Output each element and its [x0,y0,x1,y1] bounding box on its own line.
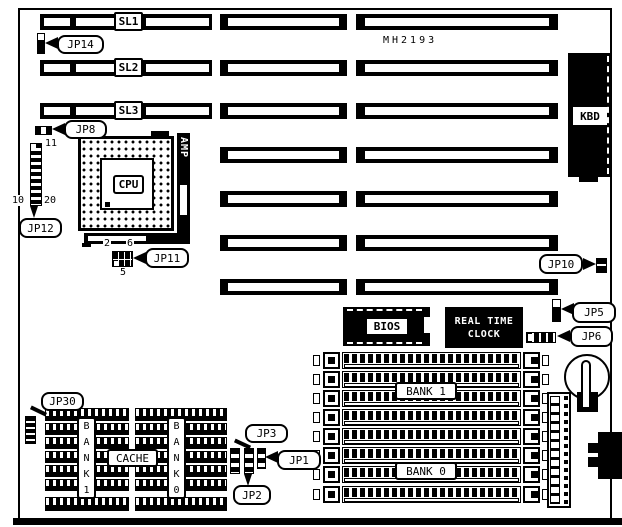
jp2-connector [244,448,254,474]
motherboard-diagram: SL1 SL2 SL3 MH2193 KBD JP14 JP8 [0,0,622,527]
cache-chip [182,423,227,435]
simm-bracket [523,428,540,445]
jp11-pin6-number: 6 [126,238,134,249]
simm-mount-hole [313,469,320,480]
jp1-callout: JP1 [277,450,321,470]
jp11-pin2-number: 2 [103,238,111,249]
jp12-pin20-number: 20 [43,195,57,206]
jp3-callout: JP3 [245,424,288,443]
isa-slot-mid [220,103,347,119]
cache-chip [182,451,227,463]
bios-chip: BIOS [343,307,430,346]
jp6-connector [526,332,556,343]
simm-latch [328,433,335,440]
simm-mount-hole [313,489,320,500]
cpu-pin1-dot [105,202,110,207]
rtc-label-line1: REAL TIME [455,315,514,328]
simm-latch [531,452,538,459]
simm-latch [531,433,538,440]
cache-bank0-label: B A N K 0 [167,417,186,499]
simm-body [344,421,519,425]
simm-mount-hole [313,374,320,385]
jp10-connector [596,258,607,273]
kbd-label: KBD [573,107,607,125]
slot-contact [44,18,70,26]
slot-label-sl2: SL2 [114,58,143,77]
jp2-callout: JP2 [233,485,271,505]
simm-body [344,364,519,368]
cache-chip [182,465,227,477]
simm-latch [531,471,538,478]
slot-contact [365,283,549,291]
simm-latch [328,376,335,383]
slot-label-sl1: SL1 [114,12,143,31]
simm-latch [328,452,335,459]
slot-contact [228,195,339,203]
isa-slot-right [356,14,558,30]
jp8-connector [35,126,52,135]
cache-chip [182,437,227,449]
jp10-arrow [583,258,596,270]
slot-contact [76,18,114,26]
isa-slot-right [356,191,558,207]
simm-bracket [323,371,340,388]
slot-contact [146,64,209,72]
isa-slot-sl2: SL2 [40,60,212,76]
simm-latch [328,491,335,498]
simm-bracket [523,486,540,503]
jp12-callout: JP12 [19,218,62,238]
din-connector [598,432,622,479]
simm-mount-hole [313,393,320,404]
simm-latch [531,414,538,421]
simm-bracket [323,428,340,445]
amp-regulator: AMP [177,133,190,233]
jp12-pin11-number: 11 [44,138,58,149]
simm-socket-row [342,352,521,369]
jp14-callout: JP14 [57,35,104,54]
jp30-callout: JP30 [41,392,84,411]
isa-slot-sl3: SL3 [40,103,212,119]
bios-notch [424,317,430,333]
jp12-connector [30,143,42,206]
simm-latch [328,395,335,402]
kbd-tab [579,177,598,182]
amp-label: AMP [178,137,189,158]
simm-bracket [523,390,540,407]
amp-slot [180,185,187,215]
simm-body [344,498,519,502]
slot-contact [44,107,70,115]
simm-latch [531,376,538,383]
bank0-label: BANK 0 [395,462,457,480]
cache-bank1-label: B A N K 1 [77,417,96,499]
bank1-label: BANK 1 [395,382,457,400]
isa-slot-right [356,103,558,119]
simm-bracket [523,447,540,464]
cache-chip [45,497,129,511]
simm-bracket [323,447,340,464]
simm-socket-row [342,486,521,503]
cpu-socket-arena: CPU [100,158,154,210]
simm-bracket [323,390,340,407]
simm-latch [328,357,335,364]
real-time-clock-chip: REAL TIME CLOCK [445,307,523,348]
simm-bracket [323,486,340,503]
jp11-connector [112,251,133,267]
jp5-connector [552,299,561,322]
cache-label: CACHE [107,449,158,467]
jp11-open-pin [114,261,118,266]
simm-socket-row [342,428,521,445]
jp10-callout: JP10 [539,254,583,274]
isa-slot-right [356,60,558,76]
slot-contact [146,107,209,115]
jp11-callout: JP11 [145,248,189,268]
isa-slot-mid [220,191,347,207]
jp12-pin10-number: 10 [11,195,25,206]
cpu-lower-connector-nub [82,243,91,247]
simm-contacts [344,449,519,458]
slot-contact [228,107,339,115]
simm-mount-hole [313,355,320,366]
isa-slot-right [356,279,558,295]
simm-body [344,440,519,444]
slot-contact [228,18,339,26]
slot-contact [365,107,549,115]
simm-latch [531,491,538,498]
jp8-callout: JP8 [64,120,107,139]
isa-slot-right [356,235,558,251]
isa-slot-mid [220,14,347,30]
isa-slot-mid [220,235,347,251]
simm-contacts [344,488,519,497]
simm-mount-hole [542,374,549,385]
isa-slot-mid [220,147,347,163]
slot-contact [228,283,339,291]
slot-contact [365,64,549,72]
slot-contact [365,239,549,247]
simm-bracket [523,371,540,388]
jp12-pointer [30,206,38,218]
din-connector-tab [588,457,598,467]
slot-contact [365,18,549,26]
simm-latch [531,395,538,402]
simm-bracket [323,352,340,369]
slot-contact [228,151,339,159]
cpu-socket: CPU [78,136,174,231]
jp30-connector [25,416,36,444]
isa-slot-right [356,147,558,163]
simm-mount-hole [313,412,320,423]
simm-latch [328,414,335,421]
power-pins-left [550,396,560,504]
jp6-callout: JP6 [570,326,613,347]
cache-chip [135,497,227,511]
simm-mount-hole [542,355,549,366]
simm-contacts [344,354,519,363]
bios-label: BIOS [365,317,409,336]
bios-dash-top [347,309,422,311]
slot-contact [228,64,339,72]
isa-slot-sl1: SL1 [40,14,212,30]
din-connector-tab [588,443,598,453]
power-pins-right [564,396,568,504]
slot-contact [228,239,339,247]
simm-bracket [523,466,540,483]
power-connector [547,392,571,508]
jp6-arrow [557,330,570,342]
slot-contact [365,151,549,159]
jp11-pin5-number: 5 [119,267,127,278]
cache-chip [182,479,227,491]
simm-bracket [523,409,540,426]
isa-slot-mid [220,60,347,76]
slot-contact [76,64,114,72]
jp14-connector [37,33,45,54]
slot-contact [76,107,114,115]
simm-bracket [323,466,340,483]
slot-contact [365,195,549,203]
simm-contacts [344,430,519,439]
simm-socket-row [342,409,521,426]
simm-bracket [523,352,540,369]
crystal-body [581,360,591,409]
simm-bracket [323,409,340,426]
rtc-label-line2: CLOCK [468,328,501,341]
jp12-pin1-notch [31,144,36,148]
cpu-label: CPU [113,175,144,194]
simm-latch [328,471,335,478]
bios-dash-bottom [347,342,422,344]
jp3-connector [230,448,240,474]
board-model-text: MH2193 [383,35,437,46]
simm-mount-hole [313,431,320,442]
jp5-callout: JP5 [572,302,616,323]
isa-slot-mid [220,279,347,295]
kbd-dashed-edge [607,56,609,174]
simm-contacts [344,411,519,420]
slot-contact [88,236,146,241]
simm-contacts [344,373,519,382]
jp6-open-pin [528,334,533,341]
slot-label-sl3: SL3 [114,101,143,120]
cpu-lower-connector [84,233,190,244]
cpu-socket-tab [151,131,169,137]
slot-contact [146,18,209,26]
simm-latch [531,357,538,364]
board-bottom-edge [13,518,622,525]
simm-body [344,402,519,406]
keyboard-connector: KBD [568,53,612,177]
slot-contact [44,64,70,72]
